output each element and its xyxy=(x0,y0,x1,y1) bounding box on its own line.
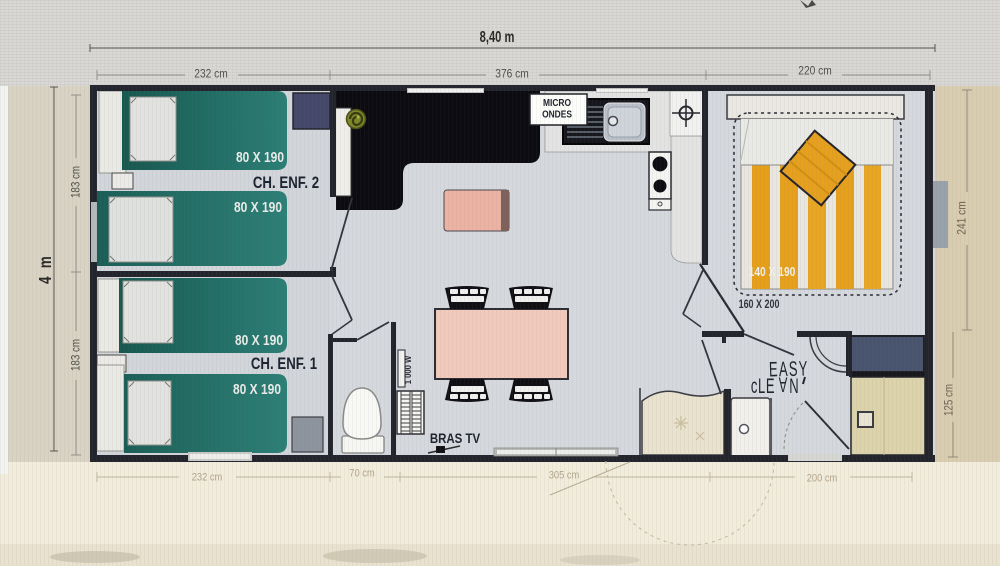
svg-text:200 cm: 200 cm xyxy=(807,473,838,485)
svg-text:305 cm: 305 cm xyxy=(549,470,580,482)
svg-text:183 cm: 183 cm xyxy=(70,166,83,198)
svg-text:220 cm: 220 cm xyxy=(798,65,831,78)
svg-text:232 cm: 232 cm xyxy=(192,472,223,484)
svg-text:4 m: 4 m xyxy=(36,254,55,284)
svg-text:70 cm: 70 cm xyxy=(349,468,374,480)
svg-text:232 cm: 232 cm xyxy=(194,68,227,81)
svg-text:376 cm: 376 cm xyxy=(495,68,528,81)
svg-text:125 cm: 125 cm xyxy=(943,384,956,416)
svg-text:183 cm: 183 cm xyxy=(70,339,83,371)
svg-text:8,40 m: 8,40 m xyxy=(480,28,515,45)
svg-text:241 cm: 241 cm xyxy=(956,201,969,234)
